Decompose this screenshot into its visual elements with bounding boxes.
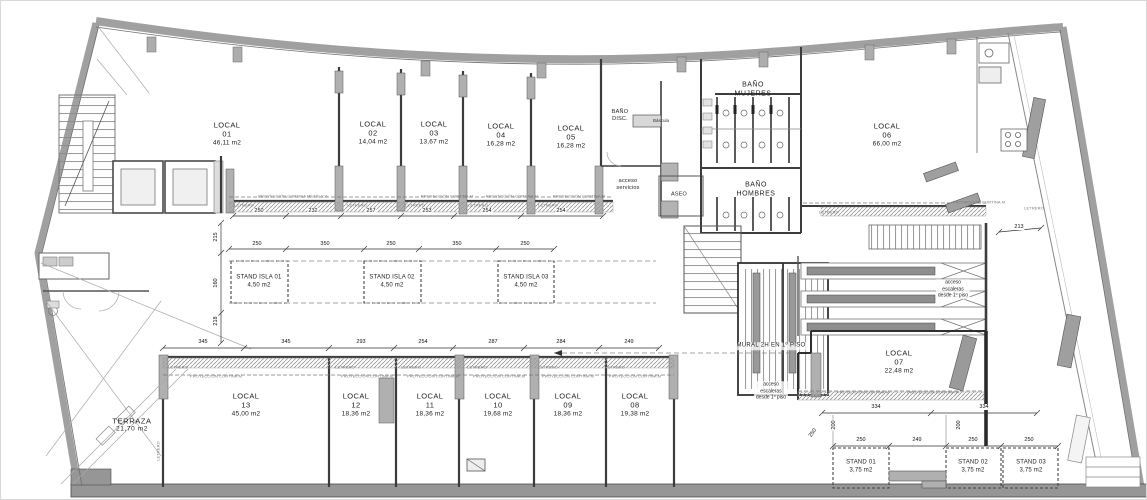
acceso-escaleras-mural-label: acceso escaleras desde 1º piso bbox=[754, 381, 788, 401]
micro-annotation-label: PROYECCIÓN CORTINA M bbox=[953, 200, 1005, 205]
room-label-local-02: LOCAL0214,04 m2 bbox=[359, 120, 388, 147]
micro-annotation-label: LETRERO bbox=[819, 210, 839, 215]
micro-annotation-label: LETRERO bbox=[401, 365, 421, 370]
dimension-label: 334 bbox=[870, 404, 881, 410]
room-label-local-11: LOCAL1118,36 m2 bbox=[416, 392, 445, 419]
acceso-servicios-label: accesoservicios bbox=[616, 178, 639, 192]
stand-isla-03-label: STAND ISLA 034,50 m2 bbox=[503, 275, 548, 290]
micro-annotation-label: LETRERO bbox=[538, 365, 558, 370]
room-label-local-06: LOCAL0666,00 m2 bbox=[873, 122, 902, 149]
micro-annotation-label: PROYECCIÓN CORTINA M bbox=[190, 374, 242, 379]
dimension-label: 250 bbox=[1023, 437, 1034, 443]
dimension-label: 250 bbox=[251, 241, 262, 247]
micro-annotation-label: PROYECCIÓN CORTINA M bbox=[341, 374, 393, 379]
dimension-label: 250 bbox=[967, 437, 978, 443]
dimension-label: 200 bbox=[956, 419, 962, 430]
dimension-label: 254 bbox=[417, 339, 428, 345]
dimension-label: 200 bbox=[831, 419, 837, 430]
dimension-label: 334 bbox=[978, 404, 989, 410]
dimension-label: 284 bbox=[555, 339, 566, 345]
dimension-label: 350 bbox=[319, 241, 330, 247]
micro-annotation-label: PROYECCIÓN CORTINA M bbox=[542, 374, 594, 379]
micro-annotation-label: LETRERO bbox=[1024, 206, 1044, 211]
dimension-label: 250 bbox=[519, 241, 530, 247]
micro-annotation-label: PROYECCIÓN CORTINA M bbox=[473, 374, 525, 379]
micro-annotation-label: LETRERO bbox=[347, 203, 367, 208]
dimension-label: 250 bbox=[385, 241, 396, 247]
aseo-label: ASEO bbox=[671, 192, 687, 199]
dimension-label: 215 bbox=[213, 231, 219, 242]
dimension-label: 254 bbox=[555, 208, 566, 214]
micro-annotation-label: PROYECCIÓN CORTINA M bbox=[553, 194, 605, 199]
micro-annotation-label: LETRERO bbox=[605, 365, 625, 370]
room-label-local-03: LOCAL0313,67 m2 bbox=[420, 120, 449, 147]
room-label-local-12: LOCAL1218,36 m2 bbox=[342, 392, 371, 419]
acceso-escaleras-escalator-label: acceso escaleras desde 1º piso bbox=[936, 279, 970, 299]
dimension-label: 249 bbox=[623, 339, 634, 345]
micro-annotation-label: PROYECCIÓN CORTINA M bbox=[421, 194, 473, 199]
bano-hombres-label: BAÑOHOMBRES bbox=[737, 181, 776, 199]
room-label-local-04: LOCAL0416,28 m2 bbox=[487, 122, 516, 149]
bano-disc-label: BAÑODISC. bbox=[612, 109, 628, 123]
room-label-local-05: LOCAL0516,28 m2 bbox=[557, 124, 586, 151]
micro-annotation-label: LETRERO bbox=[234, 203, 254, 208]
room-label-local-10: LOCAL1019,68 m2 bbox=[484, 392, 513, 419]
stand-01-label: STAND 013,75 m2 bbox=[846, 460, 876, 475]
dimension-label: 287 bbox=[487, 339, 498, 345]
bascula-label: Báscula bbox=[653, 118, 669, 124]
dimension-label: 232 bbox=[307, 208, 318, 214]
room-label-local-13: LOCAL1345,00 m2 bbox=[232, 392, 261, 419]
micro-annotation-label: PROYECCIÓN CORTINA M bbox=[837, 390, 889, 395]
stand-isla-01-label: STAND ISLA 014,50 m2 bbox=[236, 275, 281, 290]
micro-annotation-label: LETRERO bbox=[405, 203, 425, 208]
micro-annotation-label: LETRERO bbox=[468, 203, 488, 208]
micro-annotation-label: PROYECCIÓN CORTINA M bbox=[609, 374, 661, 379]
terraza-label: TERRAZA21,70 m2 bbox=[112, 416, 151, 434]
micro-annotation-label: PROYECCIÓN CORTINA METÁLICA bbox=[258, 194, 328, 199]
micro-annotation-label: LETRERO bbox=[335, 365, 355, 370]
dimension-label: 253 bbox=[421, 208, 432, 214]
dimension-label: 254 bbox=[481, 208, 492, 214]
room-label-local-08: LOCAL0819,38 m2 bbox=[621, 392, 650, 419]
dimension-label: 249 bbox=[911, 437, 922, 443]
dimension-label: 345 bbox=[280, 339, 291, 345]
dimension-label: 250 bbox=[253, 208, 264, 214]
bano-mujeres-label: BAÑOMUJERES bbox=[735, 81, 772, 99]
micro-annotation-label: PROYECCIÓN CORTINA M bbox=[907, 390, 959, 395]
dimension-label: 257 bbox=[365, 208, 376, 214]
stand-02-label: STAND 023,75 m2 bbox=[958, 460, 988, 475]
dimension-label: 345 bbox=[197, 339, 208, 345]
dimension-label: 350 bbox=[451, 241, 462, 247]
mural-label: MURAL 2H EN 1º PISO bbox=[734, 342, 807, 350]
micro-annotation-label: LETRERO bbox=[156, 441, 161, 461]
label-overlay: LOCAL0146,11 m2 LOCAL0214,04 m2 LOCAL031… bbox=[1, 1, 1146, 499]
room-label-local-01: LOCAL0146,11 m2 bbox=[213, 121, 241, 148]
micro-annotation-label: LETRERO bbox=[467, 365, 487, 370]
micro-annotation-label: PROYECCIÓN CORTINA M bbox=[407, 374, 459, 379]
stand-03-label: STAND 033,75 m2 bbox=[1016, 460, 1046, 475]
dimension-label: 160 bbox=[213, 277, 219, 288]
dimension-label: 293 bbox=[355, 339, 366, 345]
micro-annotation-label: LETRERO bbox=[538, 203, 558, 208]
dimension-label: 250 bbox=[807, 427, 818, 440]
stand-isla-02-label: STAND ISLA 024,50 m2 bbox=[369, 275, 414, 290]
dimension-label: 213 bbox=[1013, 224, 1024, 230]
micro-annotation-label: PROYECCIÓN CORTINA M bbox=[486, 194, 538, 199]
floor-plan: LOCAL0146,11 m2 LOCAL0214,04 m2 LOCAL031… bbox=[0, 0, 1147, 500]
room-label-local-07: LOCAL0722,48 m2 bbox=[885, 349, 914, 376]
micro-annotation-label: LETRERO bbox=[168, 365, 188, 370]
dimension-label: 250 bbox=[855, 437, 866, 443]
dimension-label: 218 bbox=[213, 315, 219, 326]
micro-annotation-label: LETRERO bbox=[803, 393, 823, 398]
room-label-local-09: LOCAL0918,36 m2 bbox=[554, 392, 583, 419]
